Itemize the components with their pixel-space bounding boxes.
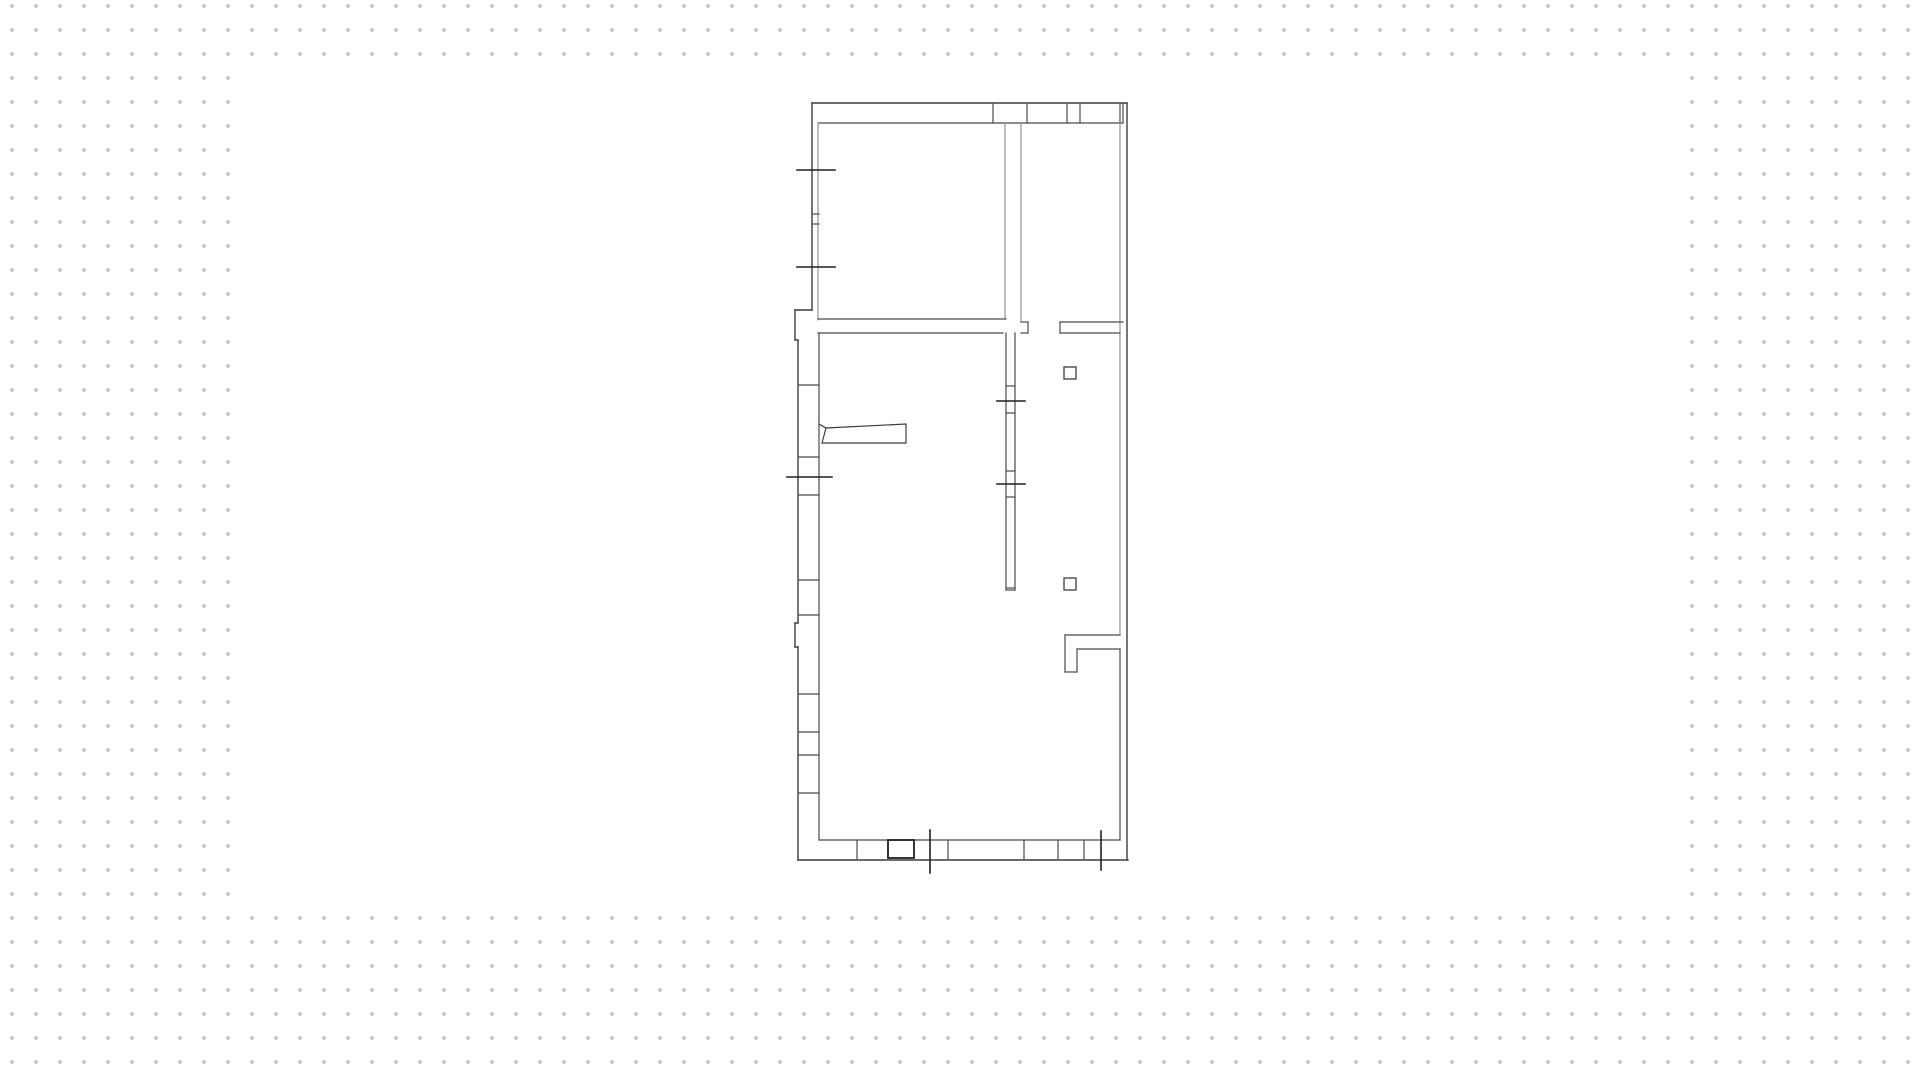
door-hinge-line[interactable]: [819, 424, 826, 428]
left-wall-window-dividers[interactable]: [798, 385, 819, 793]
outlet-square[interactable]: [1064, 578, 1076, 590]
outlet-squares[interactable]: [1064, 367, 1076, 590]
door-leaf[interactable]: [819, 424, 906, 443]
bottom-door-cell-rect[interactable]: [888, 840, 914, 858]
exterior-walls[interactable]: [795, 103, 1128, 860]
bottom-door-cell[interactable]: [888, 840, 914, 858]
outlet-square[interactable]: [1064, 367, 1076, 379]
floor-plan-drawing[interactable]: [0, 0, 1920, 1078]
top-wall-windows[interactable]: [818, 103, 1123, 123]
bottom-wall-window-dividers[interactable]: [857, 840, 1084, 860]
window-ticks[interactable]: [787, 170, 1101, 873]
interior-walls[interactable]: [812, 214, 1123, 840]
door-leaf-polygon[interactable]: [822, 424, 906, 443]
drawing-canvas[interactable]: [0, 0, 1920, 1078]
